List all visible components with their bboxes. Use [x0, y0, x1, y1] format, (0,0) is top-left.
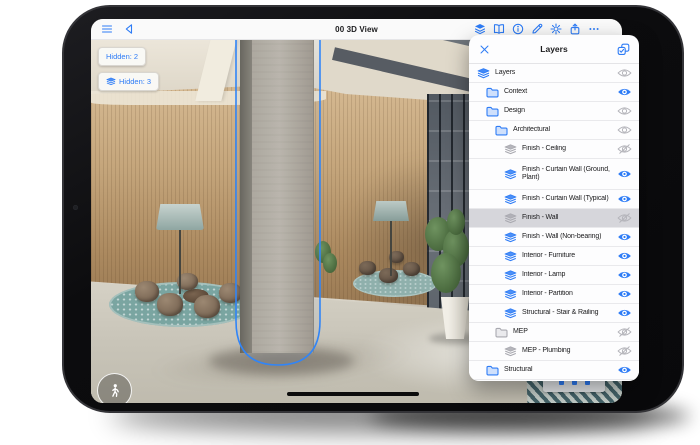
menu-icon[interactable] — [101, 23, 113, 35]
layer-label: MEP - Plumbing — [522, 347, 610, 355]
back-icon[interactable] — [123, 23, 135, 35]
layer-row-design[interactable]: Design — [469, 102, 639, 121]
layer-label: Interior - Furniture — [522, 252, 610, 260]
layer-label: Interior - Partition — [522, 290, 610, 298]
layer-label: Structural - Stair & Railing — [522, 309, 610, 317]
layers-panel-toggle-icon[interactable] — [474, 23, 486, 35]
layer-row-finish-wall-non-bearing[interactable]: Finish - Wall (Non-bearing) — [469, 228, 639, 247]
layer-label: Finish - Wall — [522, 214, 610, 222]
visibility-toggle-visible[interactable] — [617, 308, 632, 318]
layer-row-structural[interactable]: Structural — [469, 361, 639, 380]
layer-row-interior-furniture[interactable]: Interior - Furniture — [469, 247, 639, 266]
visibility-toggle-mixed[interactable] — [617, 125, 632, 135]
layer-row-structural-stair-railing[interactable]: Structural - Stair & Railing — [469, 304, 639, 323]
layer-label: Context — [504, 88, 600, 96]
scene-floor-lamp-left — [156, 204, 204, 230]
hidden-badge[interactable]: Hidden: 2 — [98, 47, 146, 66]
stage: Hidden: 2Hidden: 3 00 3D View Layers — [0, 0, 700, 445]
layer-icon — [504, 169, 517, 180]
visibility-toggle-mixed[interactable] — [617, 68, 632, 78]
visibility-toggle-visible[interactable] — [617, 270, 632, 280]
layers-panel-title: Layers — [469, 44, 639, 54]
layers-panel-header: Layers — [469, 35, 639, 64]
layer-label: Finish - Wall (Non-bearing) — [522, 233, 610, 241]
layer-icon — [504, 194, 517, 205]
folder-icon — [486, 87, 499, 98]
visibility-toggle-hidden[interactable] — [617, 346, 632, 356]
layer-rows: LayersContextDesignArchitecturalFinish -… — [469, 64, 639, 380]
layer-icon — [504, 289, 517, 300]
settings-gear-icon[interactable] — [550, 23, 562, 35]
visibility-toggle-mixed[interactable] — [617, 106, 632, 116]
scene-chair — [157, 293, 183, 316]
layer-icon — [504, 232, 517, 243]
toolbar-left-icons — [101, 23, 135, 35]
layers-root-icon — [477, 68, 490, 79]
layer-row-interior-lamp[interactable]: Interior - Lamp — [469, 266, 639, 285]
walk-mode-button[interactable] — [97, 373, 132, 403]
layer-icon — [504, 308, 517, 319]
folder-icon — [486, 365, 499, 376]
home-indicator[interactable] — [287, 392, 419, 396]
layer-row-context[interactable]: Context — [469, 83, 639, 102]
layer-row-finish-ceiling[interactable]: Finish - Ceiling — [469, 140, 639, 159]
front-camera — [73, 205, 78, 210]
visibility-toggle-visible[interactable] — [617, 87, 632, 97]
folder-icon — [495, 125, 508, 136]
more-ellipsis-icon[interactable] — [588, 23, 600, 35]
layer-row-mep-plumbing[interactable]: MEP - Plumbing — [469, 342, 639, 361]
hidden-badge-label: Hidden: 2 — [106, 52, 138, 61]
layer-row-architectural[interactable]: Architectural — [469, 121, 639, 140]
layer-label: Finish - Curtain Wall (Typical) — [522, 195, 610, 203]
selection-outline — [229, 39, 327, 375]
visibility-toggle-hidden[interactable] — [617, 327, 632, 337]
scene-chair — [194, 295, 220, 318]
scene-lamp-stem — [390, 221, 392, 276]
multi-select-layers-icon[interactable] — [617, 43, 630, 56]
layer-row-finish-curtain-wall-typical[interactable]: Finish - Curtain Wall (Typical) — [469, 190, 639, 209]
visibility-toggle-visible[interactable] — [617, 232, 632, 242]
layer-label: Architectural — [513, 126, 605, 134]
scene-lamp-stem — [179, 230, 181, 294]
layer-row-mep[interactable]: MEP — [469, 323, 639, 342]
layer-label: Design — [504, 107, 600, 115]
scene-chair — [379, 268, 398, 283]
scene-chair — [403, 262, 420, 276]
visibility-toggle-visible[interactable] — [617, 251, 632, 261]
share-icon[interactable] — [569, 23, 581, 35]
visibility-toggle-visible[interactable] — [617, 169, 632, 179]
layer-label: Finish - Curtain Wall (Ground, Plant) — [522, 166, 610, 183]
layer-icon — [504, 270, 517, 281]
layer-row-finish-curtain-wall-ground-plant[interactable]: Finish - Curtain Wall (Ground, Plant) — [469, 159, 639, 190]
layer-label: Layers — [495, 69, 595, 77]
layer-icon — [504, 251, 517, 262]
layer-icon — [504, 346, 517, 357]
visibility-toggle-visible[interactable] — [617, 289, 632, 299]
layer-label: Interior - Lamp — [522, 271, 610, 279]
visibility-toggle-hidden[interactable] — [617, 213, 632, 223]
layer-row-layers[interactable]: Layers — [469, 64, 639, 83]
hidden-badge[interactable]: Hidden: 3 — [98, 72, 159, 91]
visibility-toggle-hidden[interactable] — [617, 144, 632, 154]
folder-icon — [495, 327, 508, 338]
layer-label: Finish - Ceiling — [522, 145, 610, 153]
layer-row-finish-wall[interactable]: Finish - Wall — [469, 209, 639, 228]
pencil-icon[interactable] — [531, 23, 543, 35]
hidden-badge-label: Hidden: 3 — [119, 77, 151, 86]
layers-panel: Layers LayersContextDesignArchitecturalF… — [469, 35, 639, 381]
layer-row-interior-partition[interactable]: Interior - Partition — [469, 285, 639, 304]
scene-chair — [359, 261, 376, 275]
layer-icon — [106, 77, 116, 86]
walk-icon — [107, 383, 123, 399]
ipad-device-frame: Hidden: 2Hidden: 3 00 3D View Layers — [62, 5, 684, 413]
hidden-badges: Hidden: 2Hidden: 3 — [98, 47, 159, 91]
book-icon[interactable] — [493, 23, 505, 35]
scene-chair — [135, 281, 159, 302]
layer-icon — [504, 213, 517, 224]
info-icon[interactable] — [512, 23, 524, 35]
visibility-toggle-visible[interactable] — [617, 194, 632, 204]
layer-label: MEP — [513, 328, 605, 336]
scene-floor-lamp-right — [373, 201, 409, 221]
folder-icon — [486, 106, 499, 117]
layer-label: Structural — [504, 366, 600, 374]
layer-icon — [504, 144, 517, 155]
visibility-toggle-visible[interactable] — [617, 365, 632, 375]
